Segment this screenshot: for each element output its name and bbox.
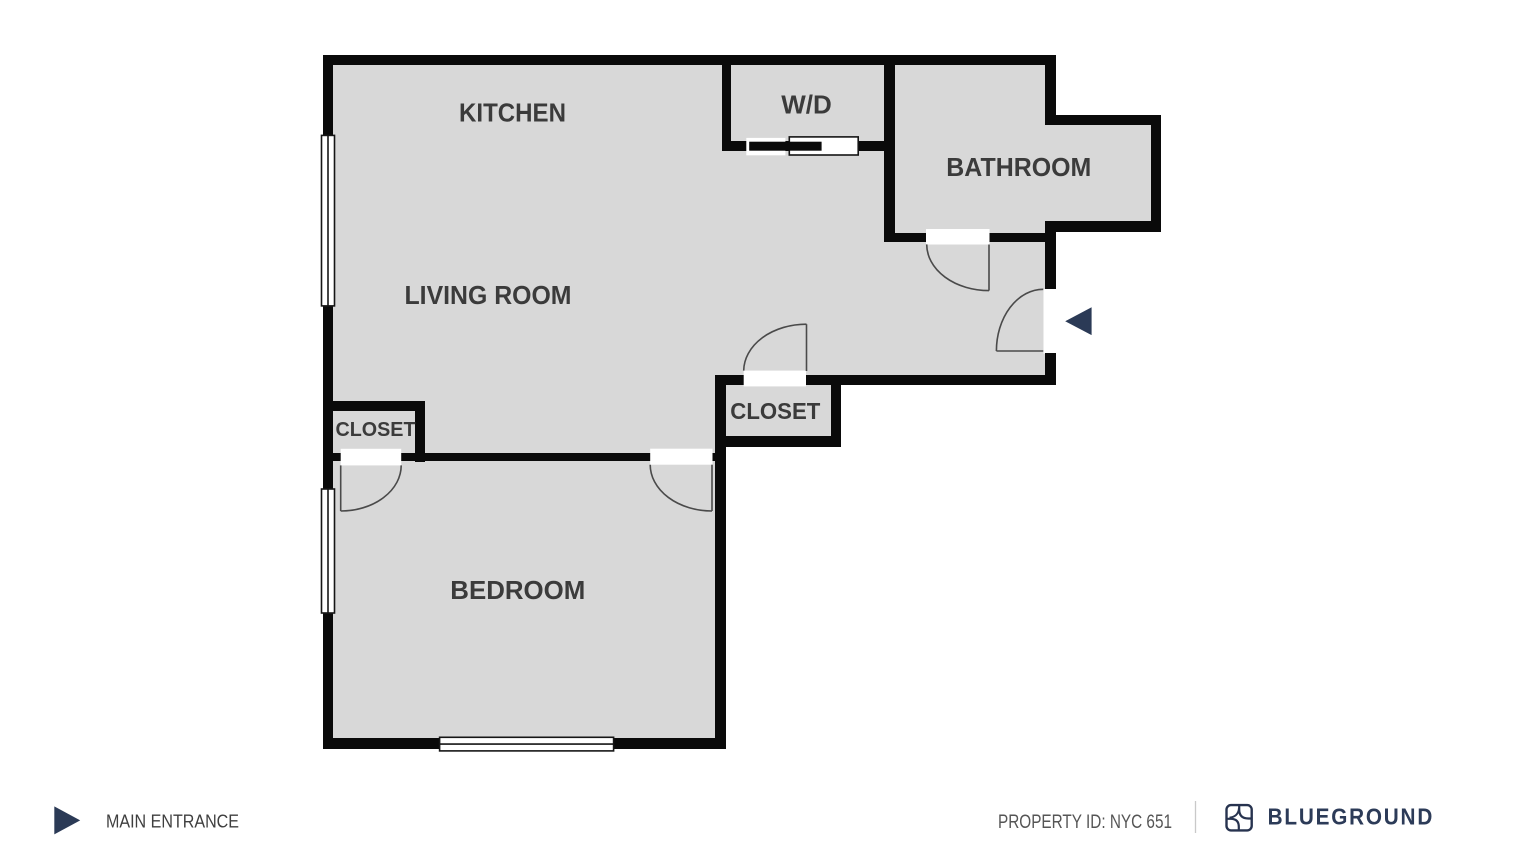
svg-text:PROPERTY ID: NYC 651: PROPERTY ID: NYC 651	[998, 812, 1172, 833]
svg-text:BEDROOM: BEDROOM	[450, 575, 585, 605]
svg-text:BLUEGROUND: BLUEGROUND	[1268, 804, 1435, 830]
svg-text:BATHROOM: BATHROOM	[946, 152, 1091, 182]
svg-text:CLOSET: CLOSET	[336, 419, 416, 441]
svg-text:LIVING ROOM: LIVING ROOM	[405, 280, 572, 310]
svg-text:KITCHEN: KITCHEN	[459, 98, 566, 128]
svg-text:W/D: W/D	[781, 90, 832, 120]
svg-text:MAIN ENTRANCE: MAIN ENTRANCE	[106, 812, 239, 832]
svg-text:CLOSET: CLOSET	[730, 398, 820, 424]
